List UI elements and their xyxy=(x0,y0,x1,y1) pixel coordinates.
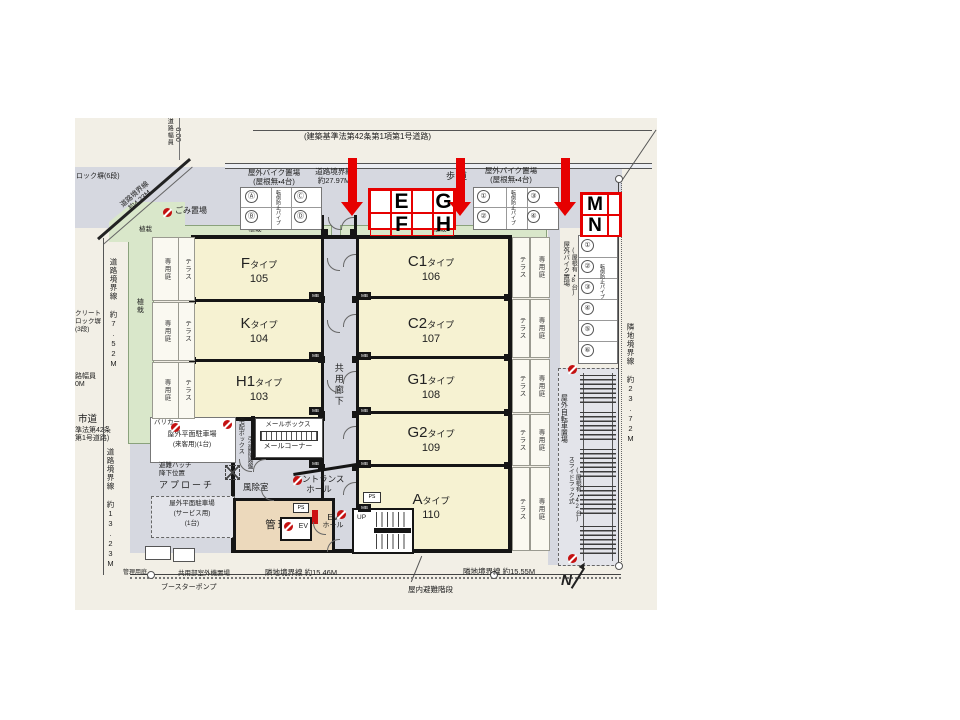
bike-rack xyxy=(580,449,616,477)
letter-grid-efgh: EG FH xyxy=(368,188,456,230)
bicycle-label-3: (屋根有・42台) xyxy=(573,468,580,522)
red-arrow-1 xyxy=(341,158,363,216)
red-mark-icon xyxy=(223,420,232,429)
mgmt-garden-label: 管理用庭 xyxy=(123,570,147,577)
stairs-up: UP xyxy=(352,508,414,554)
private-garden-label: 専用庭 xyxy=(161,379,171,402)
city-road-label: 市道 xyxy=(78,414,97,425)
letter-n: N xyxy=(582,215,608,236)
red-mark-icon xyxy=(568,365,577,374)
private-garden-label: 専用庭 xyxy=(535,256,545,279)
north-compass: N xyxy=(561,564,587,592)
bike-roofed-label-2: (屋根有・8台) xyxy=(569,248,576,296)
private-garden-label: 専用庭 xyxy=(535,317,545,340)
road-boundary-752-label: 道路境界線 約7.52M xyxy=(109,258,118,369)
hatch-mark xyxy=(225,465,240,480)
room-f105: Fタイプ 105 xyxy=(224,254,294,286)
stall-circle: ① xyxy=(477,190,490,203)
adj-boundary-1555-label: 隣地境界線 約15.55M xyxy=(463,567,535,576)
ps-box-2: PS xyxy=(363,492,381,503)
terrace-label: テラス xyxy=(516,256,526,279)
stall-circle: ④ xyxy=(527,210,540,223)
block-wall-6-label: ロック塀(6段) xyxy=(76,173,120,181)
terrace-cell: テラス xyxy=(512,299,530,358)
red-mark-icon xyxy=(568,554,577,563)
planting-label-gomi: 植栽 xyxy=(139,226,152,234)
private-garden-label: 専用庭 xyxy=(161,258,171,281)
red-mark-icon xyxy=(284,522,293,531)
booster-pump-box xyxy=(145,546,171,560)
wall-pier xyxy=(350,229,357,236)
room-c1-106: C1タイプ 106 xyxy=(396,252,466,284)
private-garden-cell: 専用庭 xyxy=(530,467,550,551)
private-garden-cell: 専用庭 xyxy=(530,237,550,298)
stall-circle: Ⓒ xyxy=(294,190,307,203)
red-mark-icon xyxy=(171,423,180,432)
red-mark-icon xyxy=(163,208,172,217)
planting-strip-west xyxy=(128,230,154,444)
wall-pier xyxy=(504,462,511,469)
private-garden-cell: 専用庭 xyxy=(530,359,550,413)
terrace-label: テラス xyxy=(182,379,192,402)
room-h1-103: H1タイプ 103 xyxy=(224,372,294,404)
terrace-label: テラス xyxy=(182,258,192,281)
road-width-frag: 路幅員0M xyxy=(75,373,96,390)
stall-circle: ⑥ xyxy=(581,344,594,357)
mail-corner-label: メールコーナー xyxy=(256,443,320,451)
private-garden-cell: 専用庭 xyxy=(530,299,550,358)
wall-pier xyxy=(321,229,328,236)
bike-roofed-label-1: 屋外バイク置場 xyxy=(561,241,569,287)
private-garden-label: 専用庭 xyxy=(535,429,545,452)
road-boundary-1323-label: 道路境界線 約13.23M xyxy=(106,448,115,569)
concrete-wall-label: クリートロック塀(3段) xyxy=(75,310,101,333)
letter-f: F xyxy=(391,213,412,236)
bike-rack xyxy=(580,412,616,440)
room-g2-109: G2タイプ 109 xyxy=(396,423,466,455)
private-garden-cell: 専用庭 xyxy=(530,414,550,466)
terrace-label: テラス xyxy=(516,375,526,398)
garbage-label: ごみ置場 xyxy=(175,206,207,216)
delivery-box-label: 宅配ボックス xyxy=(236,418,243,454)
stall-circle: Ⓐ xyxy=(245,190,258,203)
road-law-text: (建築基準法第42条第1項第1号道路) xyxy=(270,132,465,142)
stall-circle: ① xyxy=(581,239,594,252)
mb-box: MB xyxy=(309,460,322,468)
up-label: UP xyxy=(357,514,366,522)
city-road-law: 準法第42条第1号道路) xyxy=(75,427,111,444)
adj-boundary-1546-label: 隣地境界線 約15.46M xyxy=(265,568,337,577)
mb-box: MB xyxy=(358,460,371,468)
bicycle-label-1: 屋外自転車置場 xyxy=(559,394,567,443)
mb-box: MB xyxy=(358,352,371,360)
letter-grid-mn: M N xyxy=(580,192,622,237)
bike-parking-noroof-right: 屋外バイク置場(屋根無・4台) xyxy=(467,166,555,184)
mb-box: MB xyxy=(358,292,371,300)
terrace-cell: テラス xyxy=(512,237,530,298)
north-label: N xyxy=(561,572,572,590)
terrace-cell: テラス xyxy=(512,467,530,551)
terrace-cell: テラス xyxy=(178,237,195,301)
terrace-label: テラス xyxy=(516,317,526,340)
mail-room: メールボックス メールコーナー xyxy=(255,418,323,458)
mb-box: MB xyxy=(309,292,322,300)
terrace-cell: テラス xyxy=(512,414,530,466)
bike-rack xyxy=(580,486,616,514)
approach-label: アプローチ xyxy=(159,480,214,491)
terrace-cell: テラス xyxy=(178,302,195,361)
red-mark-icon xyxy=(337,510,346,519)
private-garden-label: 専用庭 xyxy=(535,375,545,398)
bike-rack xyxy=(580,375,616,403)
letter-h: H xyxy=(433,213,454,236)
terrace-label: テラス xyxy=(516,429,526,452)
stall-circle: ④ xyxy=(581,302,594,315)
stall-circle: Ⓑ xyxy=(245,210,258,223)
wall-pier xyxy=(504,409,511,416)
tip-note: 転倒防止パイプ xyxy=(599,264,605,299)
stall-circle: Ⓓ xyxy=(294,210,307,223)
wall-pier xyxy=(504,354,511,361)
road-width-label: 道路幅員 xyxy=(165,118,172,146)
planting-label-west: 植栽 xyxy=(135,298,143,314)
private-garden-cell: 専用庭 xyxy=(152,237,180,301)
hatch-label: 避難ハッチ降下位置 xyxy=(159,462,192,478)
bike-rack xyxy=(580,526,616,554)
mb-box: MB xyxy=(309,352,322,360)
terrace-cell: テラス xyxy=(178,362,195,419)
mb-box: MB xyxy=(358,407,371,415)
stall-circle: ② xyxy=(477,210,490,223)
red-arrow-3 xyxy=(554,158,576,216)
private-garden-label: 専用庭 xyxy=(535,498,545,521)
indoor-stairs-label: 屋内避難階段 xyxy=(408,585,453,594)
stall-circle: ② xyxy=(581,260,594,273)
terrace-label: テラス xyxy=(516,498,526,521)
mb-box: MB xyxy=(358,504,371,512)
room-c2-107: C2タイプ 107 xyxy=(396,314,466,346)
wall-pier xyxy=(504,294,511,301)
outdoor-units-label: 共用部室外機置場 xyxy=(178,570,230,578)
letter-m: M xyxy=(582,194,608,215)
adj-boundary-2372-label: 隣地境界線 約23.72M xyxy=(626,323,635,444)
tip-note: 転倒防止パイプ xyxy=(275,190,281,225)
red-arrow-2 xyxy=(449,158,471,216)
stall-circle: ③ xyxy=(581,281,594,294)
service-parking: 屋外平面駐車場 (サービス用) (1台) xyxy=(151,496,235,538)
private-garden-cell: 専用庭 xyxy=(152,302,180,361)
site-plan: 植栽 植栽 植栽 植栽 共用廊下 Fタイプ 105 Kタイプ 104 H1タイプ… xyxy=(75,118,657,610)
mb-box: MB xyxy=(309,407,322,415)
terrace-cell: テラス xyxy=(512,359,530,413)
booster-pump-label: ブースターポンプ xyxy=(161,584,216,592)
ps-box-1: PS xyxy=(293,503,309,513)
stall-circle: ③ xyxy=(527,190,540,203)
tip-note: 転倒防止パイプ xyxy=(510,190,516,225)
private-garden-cell: 専用庭 xyxy=(152,362,180,419)
slide: 植栽 植栽 植栽 植栽 共用廊下 Fタイプ 105 Kタイプ 104 H1タイプ… xyxy=(0,0,960,720)
red-mark-icon xyxy=(293,476,302,485)
letter-e: E xyxy=(391,190,412,213)
mailbox-label: メールボックス xyxy=(256,421,320,429)
terrace-label: テラス xyxy=(182,320,192,343)
private-garden-label: 専用庭 xyxy=(161,320,171,343)
outdoor-unit-box xyxy=(173,548,195,562)
stall-circle: ⑤ xyxy=(581,323,594,336)
room-k104: Kタイプ 104 xyxy=(224,314,294,346)
room-g1-108: G1タイプ 108 xyxy=(396,370,466,402)
